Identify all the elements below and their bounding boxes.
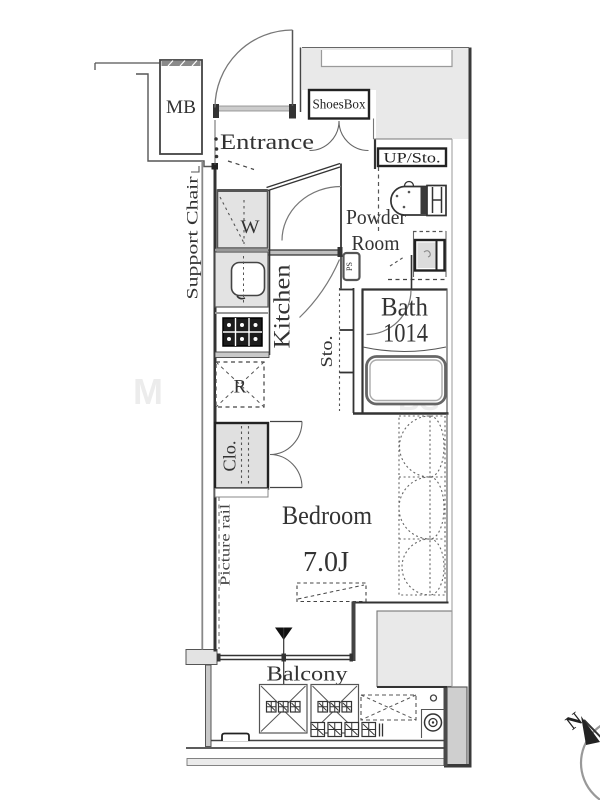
svg-text:PS: PS [345, 262, 354, 271]
svg-text:M: M [133, 371, 163, 412]
svg-text:7.0J: 7.0J [303, 546, 349, 578]
svg-text:Sto.: Sto. [317, 336, 336, 368]
svg-text:Room: Room [352, 231, 400, 255]
svg-text:Entrance: Entrance [220, 129, 314, 154]
svg-text:W: W [241, 217, 260, 238]
svg-text:Picture rail: Picture rail [218, 504, 233, 586]
svg-text:R: R [234, 377, 247, 398]
svg-text:1014: 1014 [383, 319, 428, 348]
svg-text:MB: MB [166, 97, 196, 118]
svg-text:Balcony: Balcony [267, 662, 348, 686]
svg-text:Bedroom: Bedroom [282, 501, 372, 530]
svg-text:Bath: Bath [381, 293, 428, 322]
svg-text:Clo.: Clo. [220, 441, 240, 472]
svg-text:Kitchen: Kitchen [270, 264, 295, 349]
svg-text:Support Chair: Support Chair [185, 176, 202, 300]
svg-text:ShoesBox: ShoesBox [313, 97, 366, 112]
svg-text:UP/Sto.: UP/Sto. [384, 151, 441, 167]
